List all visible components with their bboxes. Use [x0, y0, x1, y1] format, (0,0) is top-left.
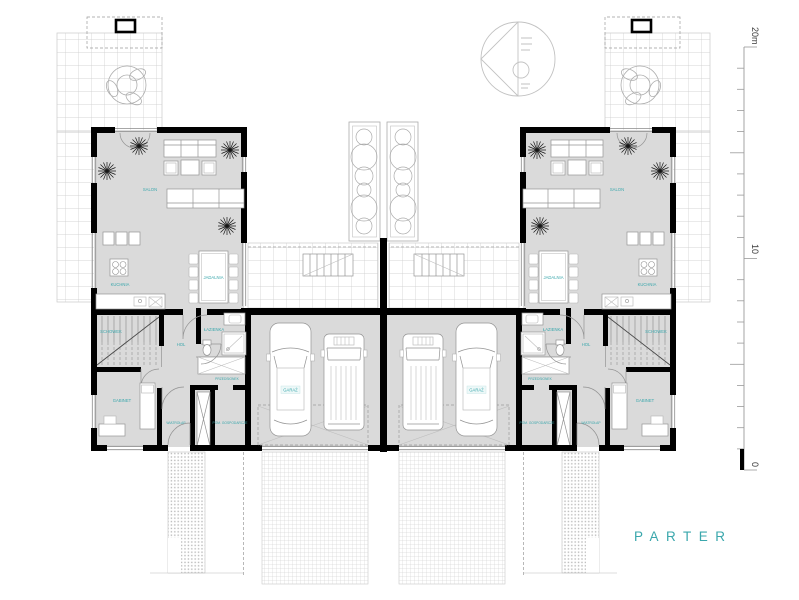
right-unit: [386, 17, 710, 584]
room-label-schowek: SCHOWEK: [100, 329, 122, 334]
room-label-przedsionek: PRZEDSIONEK: [528, 377, 552, 381]
room-label-garaz: GARAŻ: [283, 388, 298, 393]
scale-label-20m: 20m: [750, 27, 760, 45]
room-label-pom-gospodarcze: POM. GOSPODARCZE: [520, 421, 556, 425]
room-label-jadalnia: JADALNIA: [203, 275, 223, 280]
scale-label-0: 0: [750, 462, 760, 467]
room-label-gabinet: GABINET: [113, 398, 132, 403]
room-label-wiatrolap: WIATROŁAP: [581, 421, 601, 425]
room-label-schowek: SCHOWEK: [645, 329, 667, 334]
room-label-lazienka: ŁAZIENKA: [543, 327, 563, 332]
scale-bar: 20m 10 0: [730, 27, 760, 470]
room-label-hol: HOL: [177, 342, 186, 347]
room-label-lazienka: ŁAZIENKA: [204, 327, 224, 332]
room-label-kuchnia: KUCHNIA: [638, 282, 657, 287]
floor-plan-canvas: SALON KUCHNIA JADALNIA SCHOWEK HOL ŁAZIE…: [0, 0, 799, 600]
party-wall: [380, 238, 387, 452]
room-label-pom-gospodarcze: POM. GOSPODARCZE: [213, 421, 249, 425]
room-label-kuchnia: KUCHNIA: [111, 282, 130, 287]
room-label-salon: SALON: [610, 187, 624, 192]
drawing-title: PARTER: [634, 529, 733, 544]
room-label-gabinet: GABINET: [636, 398, 655, 403]
scale-label-10: 10: [750, 244, 760, 254]
room-label-jadalnia: JADALNIA: [543, 275, 563, 280]
floor-plan-page: SALON KUCHNIA JADALNIA SCHOWEK HOL ŁAZIE…: [0, 0, 799, 600]
room-label-wiatrolap: WIATROŁAP: [166, 421, 186, 425]
room-label-hol: HOL: [582, 342, 591, 347]
room-label-garaz: GARAŻ: [469, 388, 484, 393]
left-unit: [57, 17, 381, 584]
room-label-salon: SALON: [143, 187, 157, 192]
north-arrow-icon: [481, 22, 555, 96]
room-label-przedsionek: PRZEDSIONEK: [215, 377, 239, 381]
